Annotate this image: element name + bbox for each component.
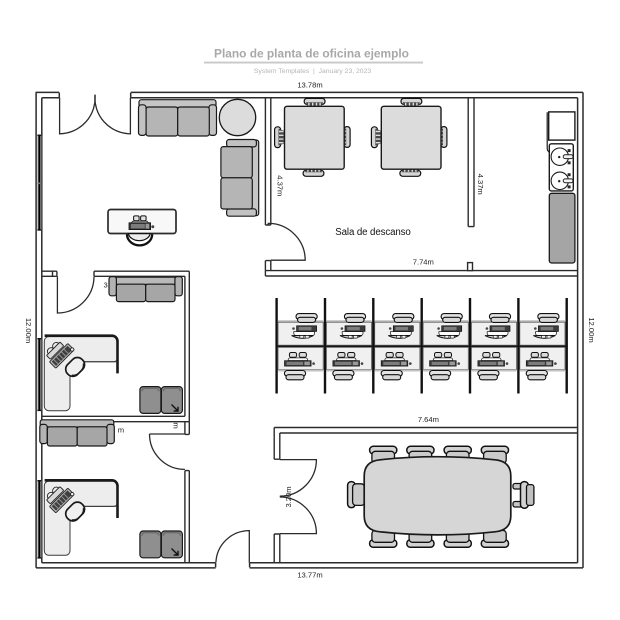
svg-text:4.37m: 4.37m <box>476 174 485 195</box>
svg-text:13.78m: 13.78m <box>297 81 322 90</box>
svg-text:System Templates | January 2: System Templates | January 23, 2023 <box>254 68 371 75</box>
svg-text:m: m <box>118 426 124 435</box>
svg-text:3.20m: 3.20m <box>284 486 293 507</box>
svg-text:7.64m: 7.64m <box>418 415 439 424</box>
svg-text:Plano de planta de oficina eje: Plano de planta de oficina ejemplo <box>214 47 409 61</box>
svg-text:7.74m: 7.74m <box>413 258 434 267</box>
svg-text:m: m <box>172 422 181 428</box>
svg-text:Sala de descanso: Sala de descanso <box>335 227 410 238</box>
svg-text:13.77m: 13.77m <box>297 570 322 579</box>
svg-text:12.00m: 12.00m <box>24 318 33 343</box>
svg-text:12.00m: 12.00m <box>587 317 596 342</box>
svg-text:4.37m: 4.37m <box>275 175 284 196</box>
